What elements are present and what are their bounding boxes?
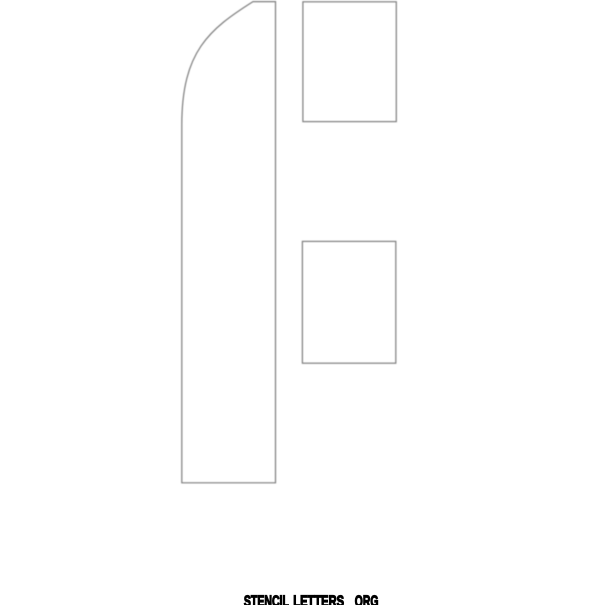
svg-text:STENCIL: STENCIL bbox=[244, 594, 289, 605]
svg-text:LETTERS: LETTERS bbox=[293, 594, 344, 605]
svg-text:ORG: ORG bbox=[355, 594, 379, 605]
